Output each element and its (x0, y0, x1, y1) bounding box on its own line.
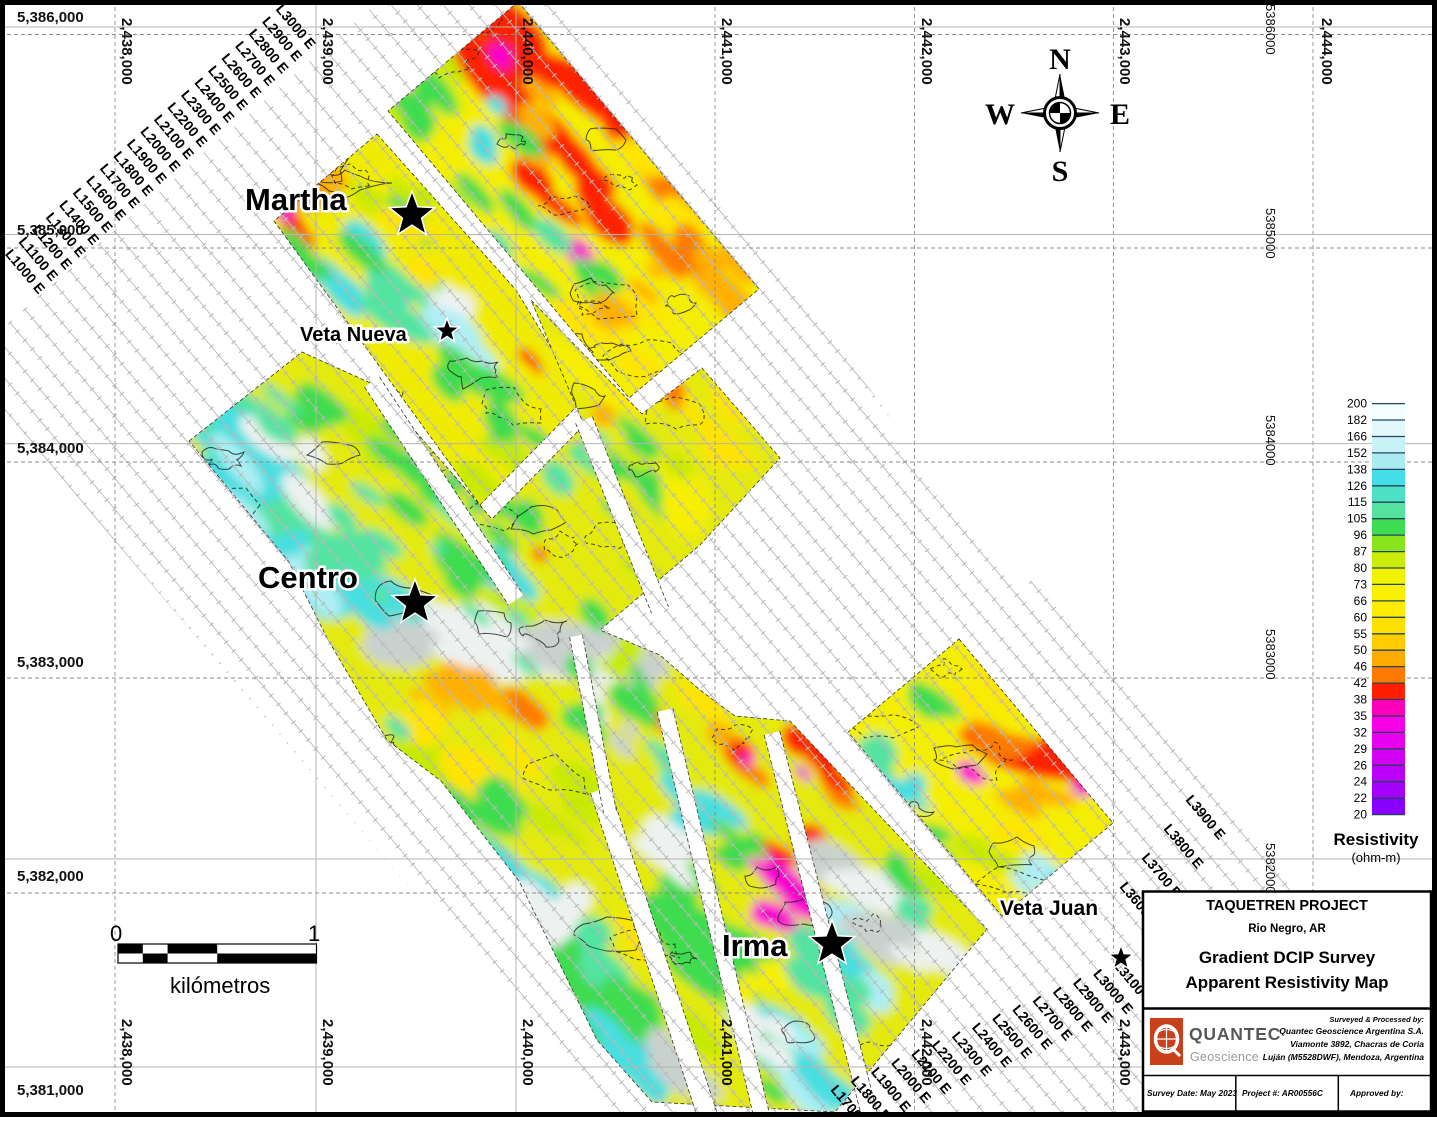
svg-text:5,384,000: 5,384,000 (17, 440, 84, 457)
svg-text:TAQUETREN PROJECT: TAQUETREN PROJECT (1206, 898, 1368, 914)
svg-text:35: 35 (1354, 709, 1368, 723)
svg-text:Approved by:: Approved by: (1349, 1088, 1404, 1098)
svg-text:Project #: AR00556C: Project #: AR00556C (1242, 1088, 1324, 1098)
svg-text:QUANTEC: QUANTEC (1189, 1024, 1281, 1044)
svg-text:2,444,000: 2,444,000 (1318, 18, 1335, 85)
svg-text:2,441,000: 2,441,000 (718, 1019, 735, 1086)
svg-text:38: 38 (1354, 693, 1368, 707)
svg-text:50: 50 (1354, 643, 1368, 657)
svg-text:W: W (985, 98, 1015, 131)
svg-text:166: 166 (1347, 430, 1367, 444)
svg-text:182: 182 (1347, 413, 1367, 427)
svg-text:42: 42 (1354, 676, 1368, 690)
svg-text:2,443,000: 2,443,000 (1116, 1019, 1133, 1086)
svg-text:5385000: 5385000 (1263, 208, 1278, 259)
svg-text:5,381,000: 5,381,000 (17, 1082, 84, 1099)
svg-text:Martha: Martha (245, 182, 347, 217)
svg-text:2,440,000: 2,440,000 (519, 18, 536, 85)
svg-text:5,386,000: 5,386,000 (17, 9, 84, 26)
svg-text:32: 32 (1354, 725, 1368, 739)
svg-text:2,441,000: 2,441,000 (718, 18, 735, 85)
svg-text:5386000: 5386000 (1263, 4, 1278, 55)
svg-text:22: 22 (1354, 791, 1368, 805)
svg-text:105: 105 (1347, 512, 1367, 526)
svg-text:Veta Juan: Veta Juan (1000, 897, 1098, 920)
svg-text:96: 96 (1354, 528, 1368, 542)
svg-text:55: 55 (1354, 627, 1368, 641)
svg-text:152: 152 (1347, 446, 1367, 460)
svg-text:115: 115 (1348, 495, 1367, 509)
svg-text:Viamonte 3892, Chacras de Cori: Viamonte 3892, Chacras de Coria (1290, 1039, 1424, 1049)
svg-text:24: 24 (1354, 775, 1368, 789)
svg-text:kilómetros: kilómetros (170, 973, 270, 998)
svg-text:(ohm-m): (ohm-m) (1351, 850, 1400, 865)
svg-text:N: N (1049, 43, 1071, 76)
svg-text:Quantec Geoscience Argentina S: Quantec Geoscience Argentina S.A. (1279, 1026, 1424, 1036)
svg-text:87: 87 (1354, 545, 1368, 559)
svg-text:2,439,000: 2,439,000 (319, 1019, 336, 1086)
svg-text:29: 29 (1354, 742, 1368, 756)
svg-text:2,438,000: 2,438,000 (118, 1019, 135, 1086)
svg-text:Luján (M5528DWF), Mendoza, Arg: Luján (M5528DWF), Mendoza, Argentina (1263, 1052, 1424, 1062)
svg-text:80: 80 (1354, 561, 1368, 575)
svg-text:S: S (1052, 155, 1069, 188)
svg-text:Apparent Resistivity Map: Apparent Resistivity Map (1185, 973, 1388, 992)
svg-text:2,438,000: 2,438,000 (118, 18, 135, 85)
svg-text:5,383,000: 5,383,000 (17, 654, 84, 671)
svg-text:E: E (1110, 98, 1130, 131)
svg-text:200: 200 (1347, 397, 1367, 411)
svg-text:2,440,000: 2,440,000 (519, 1019, 536, 1086)
svg-text:Irma: Irma (722, 928, 788, 963)
svg-text:5,385,000: 5,385,000 (17, 222, 84, 239)
svg-text:1: 1 (308, 921, 320, 946)
svg-text:2,442,000: 2,442,000 (918, 18, 935, 85)
svg-text:Veta Nueva: Veta Nueva (300, 324, 408, 346)
svg-text:20: 20 (1354, 808, 1368, 822)
svg-text:0: 0 (110, 921, 122, 946)
svg-text:Resistivity: Resistivity (1333, 830, 1419, 849)
svg-text:5382000: 5382000 (1263, 843, 1278, 894)
svg-text:138: 138 (1347, 462, 1367, 476)
svg-text:46: 46 (1354, 660, 1368, 674)
svg-text:2,443,000: 2,443,000 (1116, 18, 1133, 85)
svg-text:26: 26 (1354, 758, 1368, 772)
svg-text:2,439,000: 2,439,000 (319, 18, 336, 85)
svg-text:66: 66 (1354, 594, 1368, 608)
svg-text:5,382,000: 5,382,000 (17, 868, 84, 885)
svg-text:5384000: 5384000 (1263, 415, 1278, 466)
svg-text:Rio Negro, AR: Rio Negro, AR (1248, 923, 1326, 935)
svg-text:2,442,000: 2,442,000 (918, 1019, 935, 1086)
svg-text:Centro: Centro (258, 560, 358, 595)
svg-text:Geoscience: Geoscience (1190, 1050, 1259, 1064)
svg-text:Gradient DCIP Survey: Gradient DCIP Survey (1199, 948, 1376, 967)
svg-text:Surveyed & Processed by:: Surveyed & Processed by: (1329, 1015, 1424, 1024)
svg-text:60: 60 (1354, 610, 1368, 624)
svg-text:Survey Date: May 2023: Survey Date: May 2023 (1147, 1088, 1237, 1098)
svg-text:126: 126 (1347, 479, 1367, 493)
svg-text:73: 73 (1354, 577, 1368, 591)
svg-text:5383000: 5383000 (1263, 629, 1278, 680)
